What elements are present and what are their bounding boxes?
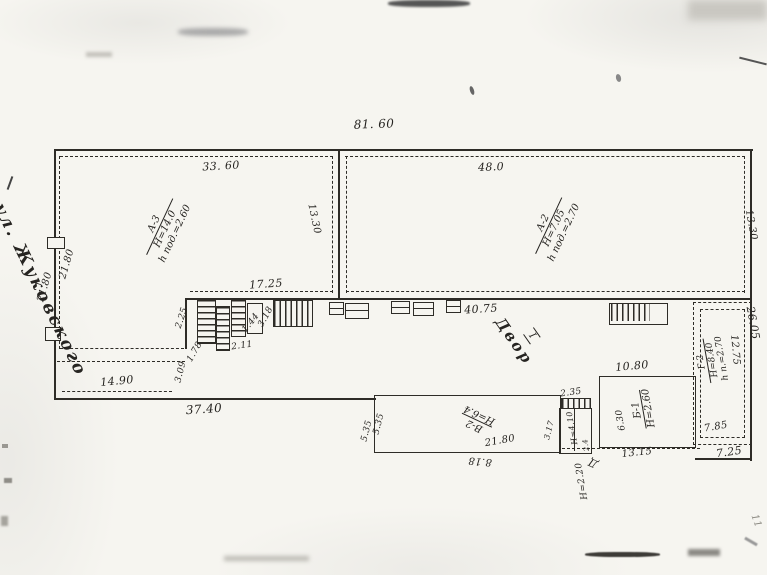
dim-porch-1-78: 1.78 — [185, 340, 204, 364]
scan-smudge — [2, 444, 8, 448]
scan-smudge — [86, 52, 112, 57]
dim-a2-front: 48.0 — [478, 160, 505, 174]
dim-garden: 14.90 — [100, 373, 135, 389]
shed-d-label: Д — [586, 455, 600, 471]
dim-west-inner: 21.80 — [57, 248, 76, 280]
scan-smudge — [4, 478, 12, 483]
a2-inner-west — [346, 156, 347, 293]
building-a2-label: А-2Н=7.05h под.=2.70 — [525, 192, 583, 263]
scan-smudge — [178, 28, 248, 36]
scan-smudge — [744, 537, 758, 547]
scan-smudge — [688, 549, 720, 556]
garden-south-dashed — [62, 391, 172, 392]
boundary-south — [54, 398, 376, 400]
gate-symbol — [47, 237, 65, 249]
scan-smudge — [469, 86, 476, 96]
courtyard-north-wall — [186, 298, 751, 300]
a3-yard-inner-south — [190, 291, 333, 292]
a3-inner-north — [60, 156, 333, 157]
dim-a3-front: 33. 60 — [202, 159, 240, 174]
dim-yard-wall: 17.25 — [249, 276, 283, 291]
dim-porch-2-11: 2.11 — [231, 340, 254, 353]
cellar-window-symbol — [413, 302, 434, 316]
stair-symbol — [197, 299, 216, 344]
scan-smudge — [224, 556, 309, 561]
dim-jog-3-09: 3.09 — [174, 360, 189, 383]
dim-b1-top: 10.80 — [615, 358, 650, 374]
scan-smudge — [388, 0, 470, 7]
stair-symbol — [216, 306, 230, 351]
scan-smudge — [1, 516, 8, 526]
cellar-window-symbol — [446, 300, 461, 313]
cellar-window-symbol — [345, 303, 369, 319]
annex-porch-steps — [561, 398, 591, 409]
scan-stroke — [7, 176, 14, 190]
dim-dashdot-13-15: 13.15 — [621, 446, 653, 460]
scan-smudge — [585, 552, 660, 557]
dim-a-divider: 13.30 — [305, 203, 322, 235]
margin-mark-11: 11 — [749, 513, 764, 529]
dim-south-boundary: 37.40 — [185, 401, 222, 418]
cellar-window-symbol — [329, 302, 344, 315]
scanned-plan-page: ул. Жуковского81. 6033. 6048.013.3013.30… — [0, 0, 767, 575]
cellar-window-symbol — [391, 301, 410, 314]
scan-smudge — [615, 73, 622, 82]
dim-v2-south: 8.18 — [468, 454, 493, 467]
a2-inner-south — [346, 291, 745, 292]
dim-yard-40-75: 40.75 — [464, 301, 498, 316]
scan-stroke — [739, 57, 767, 66]
building-a-divider-wall — [338, 151, 340, 299]
scan-smudge — [688, 0, 767, 20]
dim-a2-east: 13.30 — [743, 209, 759, 241]
boundary-north — [54, 149, 753, 151]
a3-inner-east — [332, 156, 333, 293]
dim-top-total: 81. 60 — [353, 116, 394, 131]
building-a3-label: А-3Н=14.0h под.=2.60 — [136, 193, 194, 264]
dim-porch-2-25: 2.25 — [174, 306, 190, 330]
a2-inner-north — [345, 156, 745, 157]
porch-symbol-wide — [273, 300, 313, 327]
boundary-west — [54, 149, 56, 400]
main-stairs-treads — [611, 304, 650, 321]
